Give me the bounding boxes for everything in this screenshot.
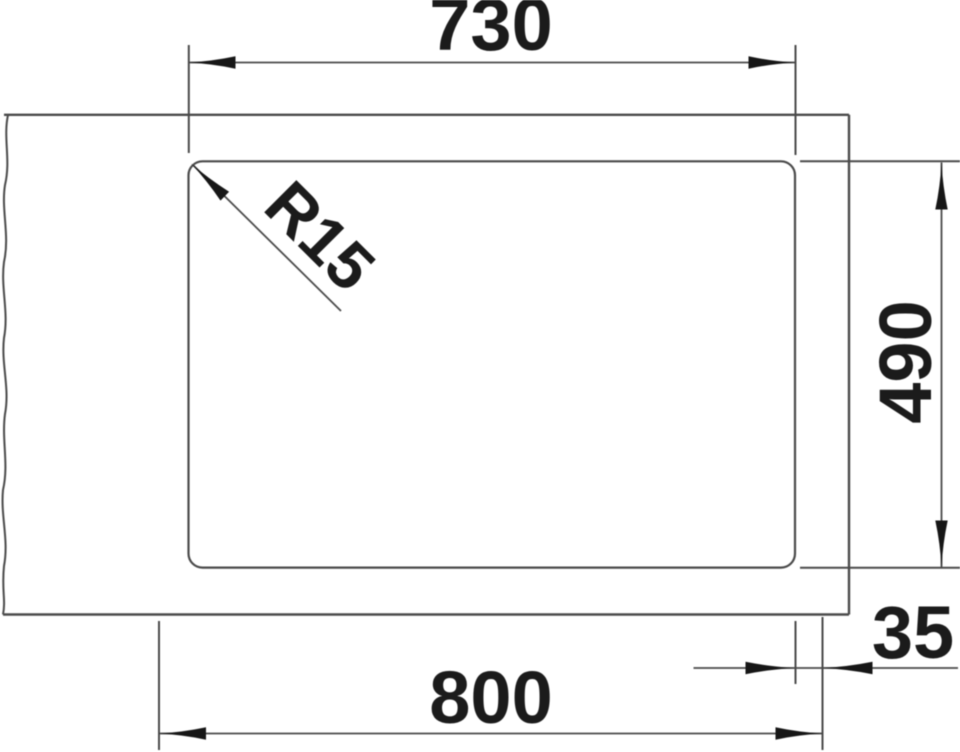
svg-text:730: 730 <box>429 0 552 66</box>
svg-text:800: 800 <box>429 656 552 739</box>
svg-text:35: 35 <box>872 591 954 674</box>
svg-text:R15: R15 <box>251 167 389 305</box>
svg-text:490: 490 <box>864 300 947 423</box>
